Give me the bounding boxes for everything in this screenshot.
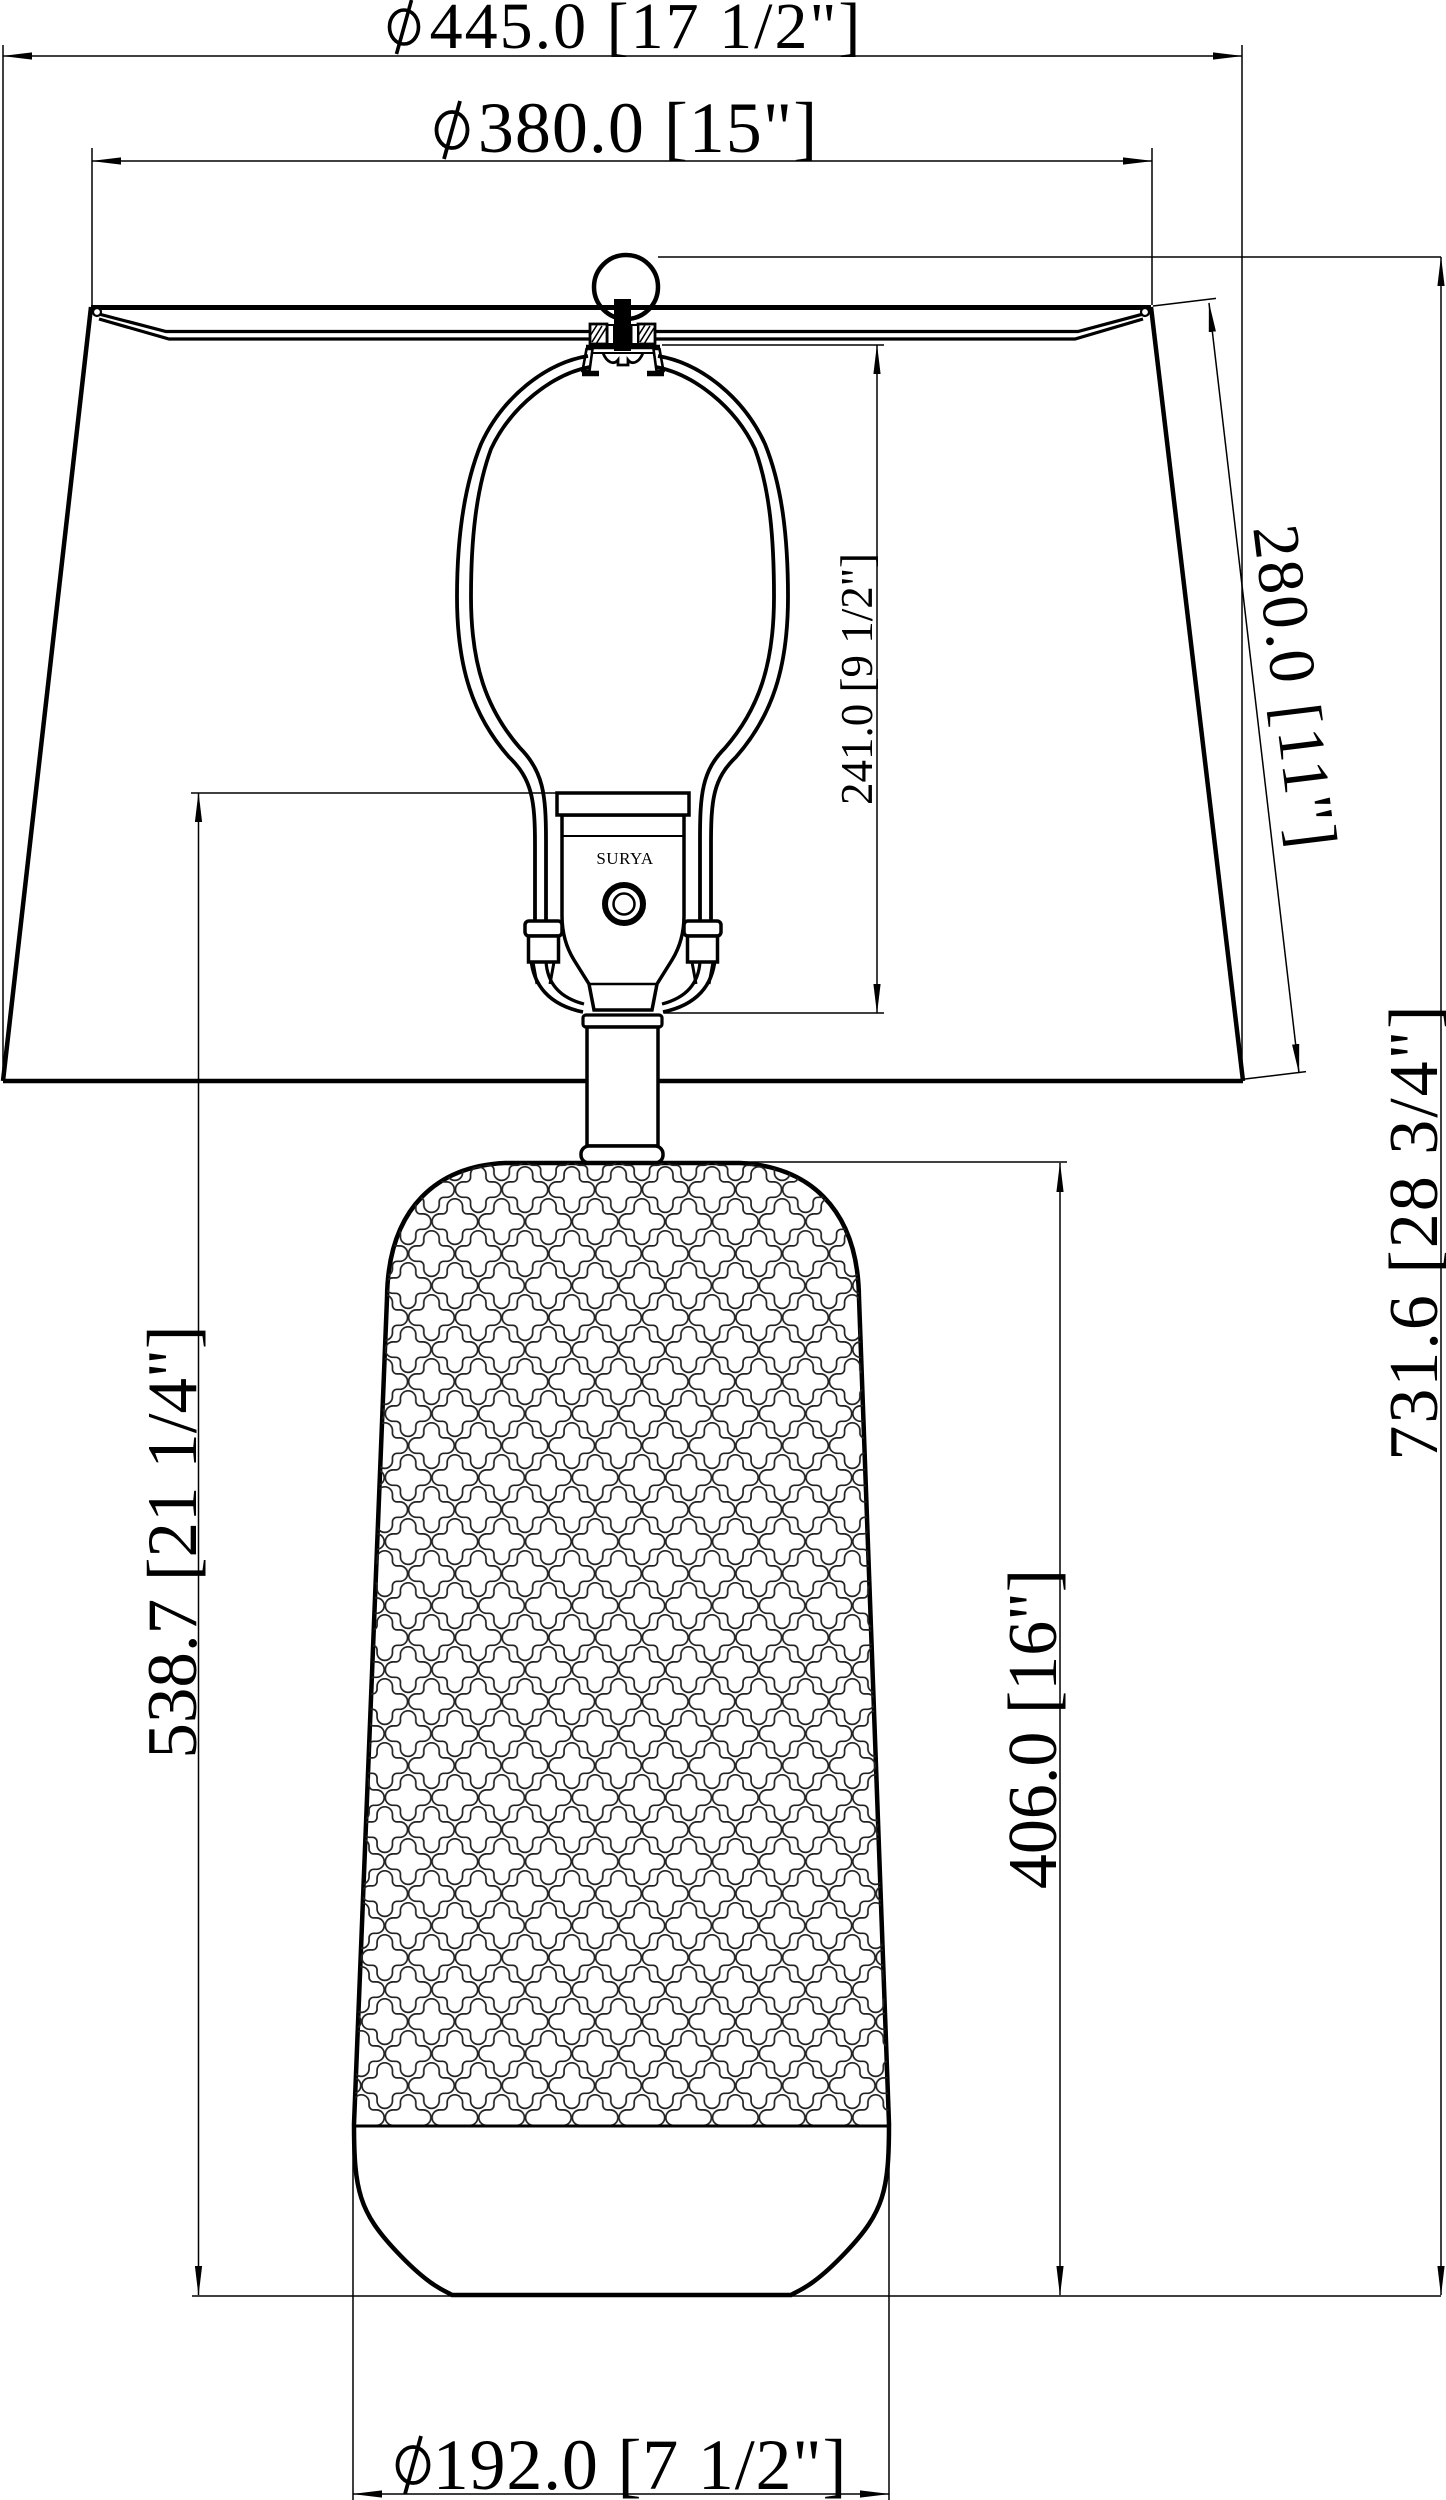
svg-text:380.0 [15"]: 380.0 [15"]: [478, 88, 818, 168]
svg-text:538.7 [21 1/4"]: 538.7 [21 1/4"]: [134, 1325, 212, 1758]
svg-text:SURYA: SURYA: [596, 849, 654, 868]
svg-text:192.0 [7 1/2"]: 192.0 [7 1/2"]: [433, 2425, 848, 2500]
svg-text:406.0 [16"]: 406.0 [16"]: [995, 1569, 1072, 1889]
svg-text:241.0 [9 1/2"]: 241.0 [9 1/2"]: [832, 553, 882, 805]
svg-text:731.6 [28 3/4"]: 731.6 [28 3/4"]: [1376, 1003, 1446, 1460]
svg-text:445.0 [17 1/2"]: 445.0 [17 1/2"]: [430, 0, 863, 63]
